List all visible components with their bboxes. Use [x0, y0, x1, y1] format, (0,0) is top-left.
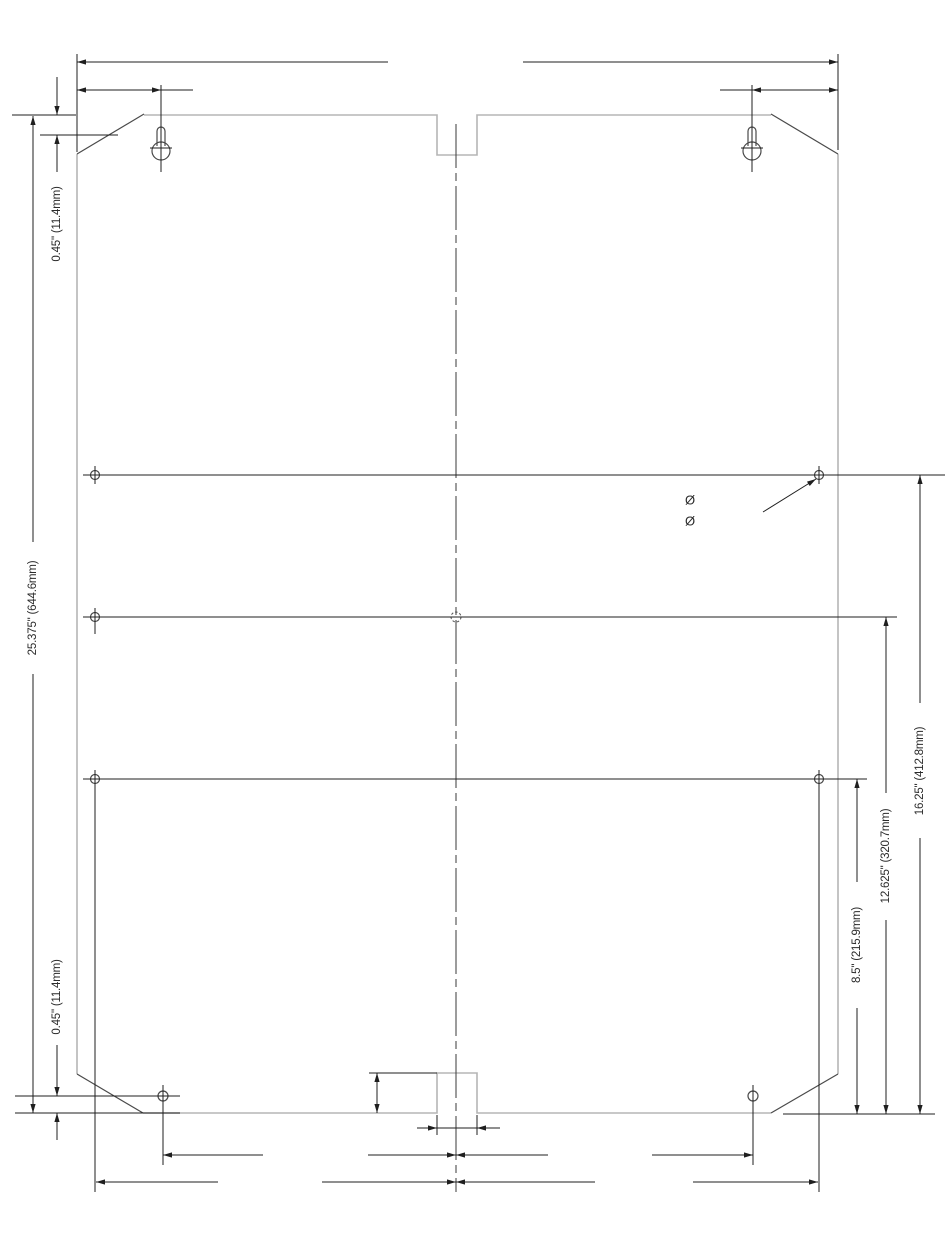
arrowhead [854, 1105, 859, 1114]
plate-bottom-edge-with-notch [143, 1073, 771, 1113]
arrowhead [854, 779, 859, 788]
right-dimensions [783, 475, 935, 1114]
plate-top-edge-with-notch [144, 115, 771, 155]
technical-drawing-canvas: 0.45" (11.4mm) 25.375" (644.6mm) 0.45" (… [0, 0, 950, 1254]
chamfer-bottom-right [771, 1074, 838, 1113]
arrowhead [917, 475, 922, 484]
keyhole-slot-right [741, 85, 763, 172]
arrowhead [752, 87, 761, 92]
corner-chamfers [77, 114, 838, 1113]
arrowhead [447, 1152, 456, 1157]
dim-label-bottom-offset: 0.45" (11.4mm) [51, 959, 63, 1034]
arrowhead [77, 87, 86, 92]
arrowhead [883, 617, 888, 626]
dimension-arrowheads [30, 59, 922, 1184]
mounting-hole [748, 1085, 758, 1107]
chamfer-bottom-left [77, 1074, 143, 1113]
dimension-drawing-svg [0, 0, 950, 1254]
arrowhead [477, 1125, 486, 1130]
arrowhead [829, 87, 838, 92]
arrowhead [54, 135, 59, 144]
dim-label-overall-height: 25.375" (644.6mm) [27, 561, 39, 656]
keyhole-right-centerline [741, 85, 763, 172]
arrowhead [54, 1113, 59, 1122]
arrowhead [30, 1104, 35, 1113]
arrowhead [163, 1152, 172, 1157]
mounting-hole [91, 608, 100, 634]
arrowhead [77, 59, 86, 64]
chamfer-top-right [771, 114, 838, 154]
arrowhead [374, 1104, 379, 1113]
dim-label-top-offset: 0.45" (11.4mm) [51, 186, 63, 261]
hole-row-lines [83, 475, 945, 779]
arrowhead [54, 106, 59, 115]
arrowhead [30, 116, 35, 125]
arrowhead [809, 1179, 818, 1184]
arrowhead [428, 1125, 437, 1130]
dim-label-row2-height: 12.625" (320.7mm) [880, 809, 892, 904]
arrowhead [374, 1073, 379, 1082]
arrowhead [152, 87, 161, 92]
hole-diameter-symbol: Ø [685, 514, 695, 529]
chamfer-top-left [77, 114, 144, 154]
dim-label-row3-height: 16.25" (412.8mm) [914, 727, 926, 815]
arrowhead [829, 59, 838, 64]
dim-label-row1-height: 8.5" (215.9mm) [851, 907, 863, 983]
keyhole-left-centerline [150, 85, 172, 172]
diameter-leader-line [763, 479, 816, 512]
arrowhead [883, 1105, 888, 1114]
arrowhead [456, 1152, 465, 1157]
mounting-holes [91, 466, 824, 1107]
arrowhead [96, 1179, 105, 1184]
arrowhead [744, 1152, 753, 1157]
arrowhead [447, 1179, 456, 1184]
arrowhead [917, 1105, 922, 1114]
keyhole-slot-left [150, 85, 172, 172]
arrowhead [456, 1179, 465, 1184]
arrowhead [54, 1087, 59, 1096]
plate-outline [77, 115, 838, 1113]
top-dimensions [77, 54, 838, 152]
hole-diameter-symbol: Ø [685, 493, 695, 508]
bottom-dimensions [95, 788, 819, 1192]
